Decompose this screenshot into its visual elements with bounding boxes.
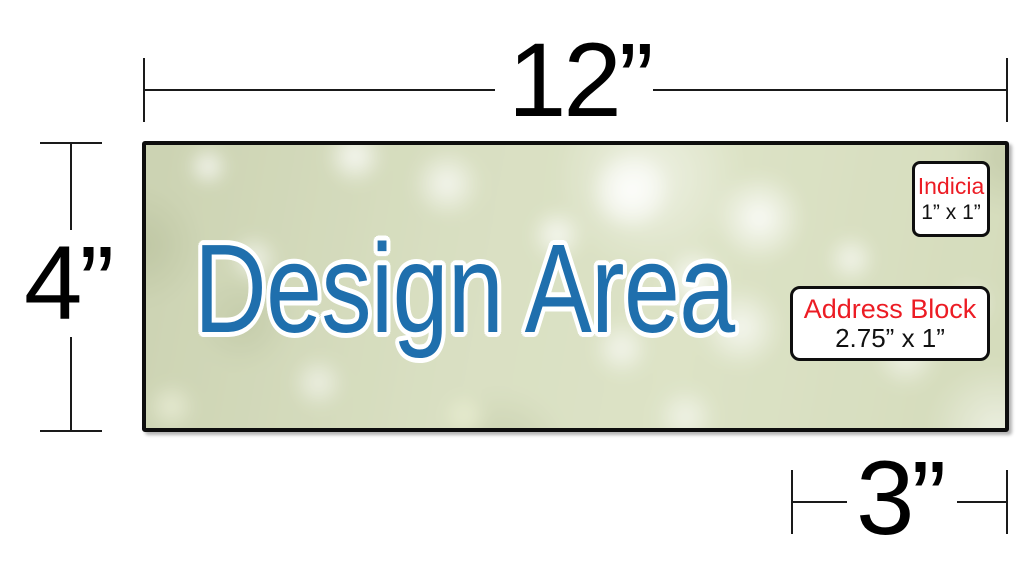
dimension-line-segment (70, 337, 72, 431)
dimension-line-segment (793, 501, 847, 503)
design-area-label: Design Area (194, 226, 734, 352)
address-width-dimension-label: 3” (856, 446, 943, 551)
dimension-tick-right (1006, 58, 1008, 122)
dimension-line-segment (653, 89, 1006, 91)
width-dimension-label: 12” (508, 28, 651, 133)
address-block-box: Address Block 2.75” x 1” (790, 286, 990, 361)
indicia-title: Indicia (918, 174, 984, 198)
indicia-size-label: 1” x 1” (921, 202, 981, 224)
dimension-tick-right (1006, 470, 1008, 534)
dimension-line-segment (70, 144, 72, 230)
indicia-box: Indicia 1” x 1” (912, 161, 990, 237)
address-block-title: Address Block (804, 295, 977, 323)
dimension-line-segment (145, 89, 495, 91)
dimension-line-segment (957, 501, 1007, 503)
mailer-spec-diagram: 12” 4” Design Area Indicia 1” x 1” Addre… (0, 0, 1035, 576)
height-dimension-label: 4” (24, 231, 111, 336)
address-block-size-label: 2.75” x 1” (835, 325, 945, 352)
dimension-tick-bottom (40, 430, 102, 432)
